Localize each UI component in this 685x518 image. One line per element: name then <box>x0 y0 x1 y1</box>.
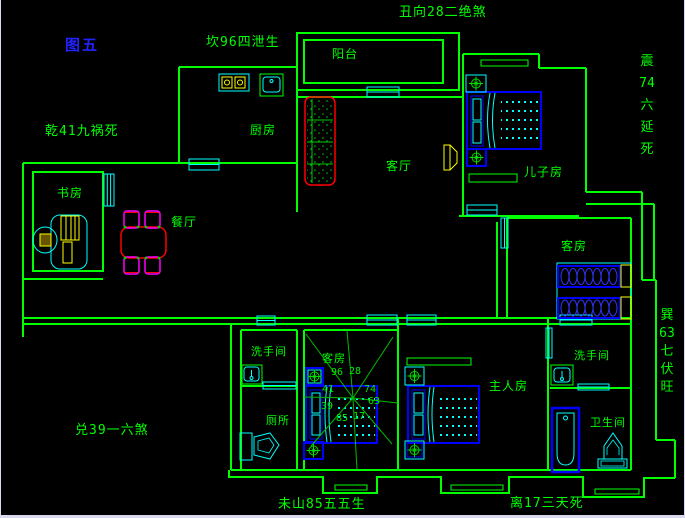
floorplan-drawing <box>1 0 685 518</box>
washroom-west-door <box>263 382 296 389</box>
compass-number-74: 74 <box>364 385 376 395</box>
master-bed <box>408 386 479 443</box>
fengshui-label-south: 离17三天死 <box>510 497 584 510</box>
sons-nightstand-bottom <box>467 149 486 166</box>
dining-chairs <box>124 211 161 274</box>
room-label-toilet: 厕所 <box>266 415 290 426</box>
study-door <box>104 174 114 206</box>
balcony-window <box>367 87 399 97</box>
sofa <box>305 97 335 185</box>
dining-table <box>121 227 166 258</box>
room-label-living-room: 客厅 <box>386 160 412 172</box>
room-label-guest-room-east: 客房 <box>561 240 587 252</box>
kitchen-window <box>189 159 219 170</box>
room-label-kitchen: 厨房 <box>250 124 276 136</box>
study-chair <box>33 227 57 253</box>
room-label-washroom-east: 洗手间 <box>574 350 610 361</box>
compass-number-63: 63 <box>368 397 380 407</box>
fengshui-label-northeast-facing: 丑向28二绝煞 <box>399 6 487 19</box>
room-label-balcony: 阳台 <box>332 48 358 60</box>
sons-room-window <box>467 205 497 215</box>
kitchen-sink <box>260 74 283 96</box>
fengshui-label-north: 坎96四泄生 <box>206 36 280 49</box>
compass-number-28: 28 <box>349 367 361 377</box>
fengshui-label-southeast: 巽 63 七 伏 旺 <box>655 309 679 399</box>
fengshui-label-east: 震 74 六 延 死 <box>635 55 659 165</box>
toilet-east <box>598 433 627 468</box>
sons-bed <box>467 92 541 149</box>
guest-middle-nightstand-bottom <box>304 442 323 459</box>
compass-number-17: 17 <box>353 412 365 422</box>
bathtub <box>552 408 579 472</box>
room-label-master-room: 主人房 <box>489 380 528 392</box>
washroom-east-sink <box>551 365 573 385</box>
room-label-study: 书房 <box>57 187 83 199</box>
compass-number-85: 85 <box>336 414 348 424</box>
room-label-guest-room-middle: 客房 <box>322 353 346 364</box>
toilet-west <box>240 433 279 460</box>
master-washroom-door <box>546 328 552 358</box>
compass-number-41: 41 <box>322 385 334 395</box>
master-nightstand-top <box>405 367 424 385</box>
room-label-bathroom: 卫生间 <box>590 417 626 428</box>
guest-east-beds <box>557 263 631 319</box>
compass-number-96: 96 <box>331 368 343 378</box>
tv <box>444 145 457 170</box>
room-label-washroom-west: 洗手间 <box>251 346 287 357</box>
washroom-west-sink <box>242 365 262 384</box>
room-label-dining-room: 餐厅 <box>171 216 197 228</box>
room-label-sons-room: 儿子房 <box>524 166 563 178</box>
fengshui-label-west: 兑39一六煞 <box>75 424 149 437</box>
washroom-east-window <box>578 384 609 390</box>
fengshui-label-northwest: 乾41九祸死 <box>45 125 119 138</box>
sons-nightstand-top <box>466 75 486 92</box>
stove <box>219 74 249 91</box>
compass-number-39: 39 <box>321 402 333 412</box>
figure-label: 图五 <box>65 38 99 53</box>
fengshui-label-south-mountain: 未山85五五生 <box>278 498 366 511</box>
guest-middle-nightstand-top <box>306 368 323 385</box>
cad-floorplan-canvas[interactable]: 图五 丑向28二绝煞 坎96四泄生 乾41九祸死 兑39一六煞 未山85五五生 … <box>0 0 685 518</box>
